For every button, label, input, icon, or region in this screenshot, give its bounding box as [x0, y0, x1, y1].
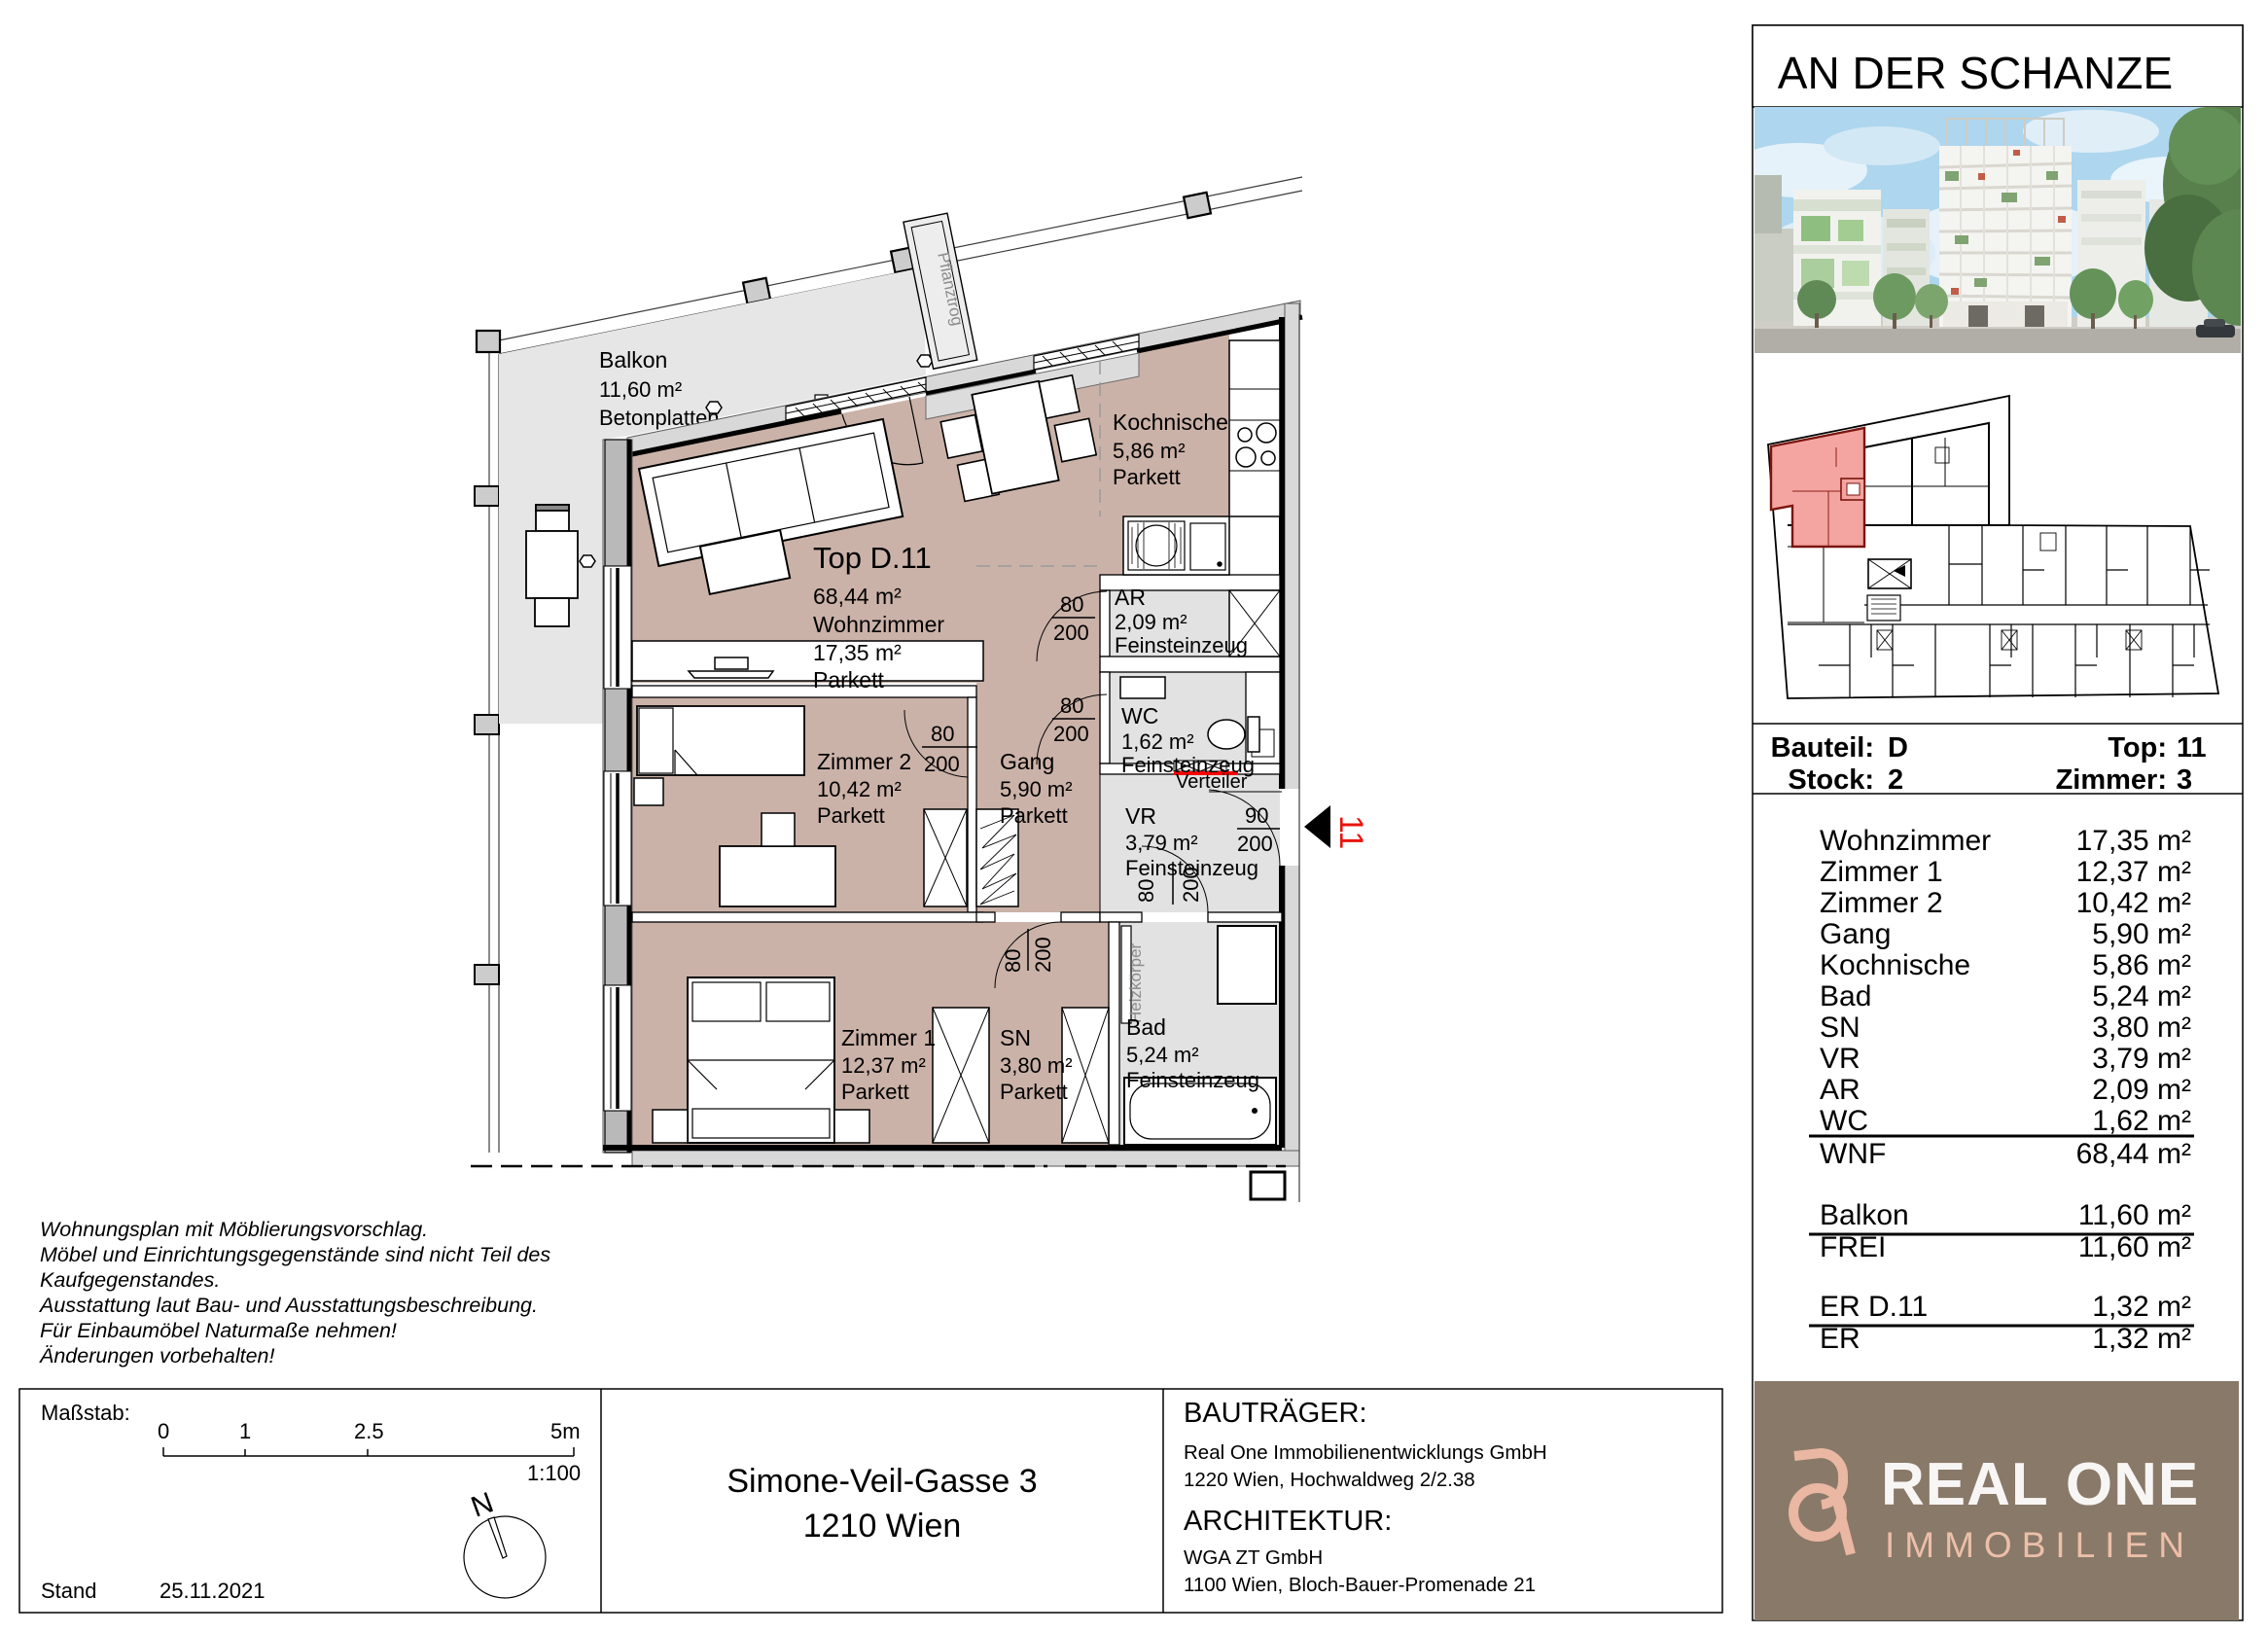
svg-text:2: 2: [1888, 764, 1903, 796]
svg-text:1,32 m²: 1,32 m²: [2092, 1291, 2191, 1323]
svg-text:Parkett: Parkett: [1000, 1080, 1068, 1104]
svg-text:Feinsteinzeug: Feinsteinzeug: [1115, 633, 1248, 657]
svg-text:Stock:: Stock:: [1788, 764, 1874, 796]
svg-text:Parkett: Parkett: [817, 803, 885, 828]
svg-text:Kaufgegenstandes.: Kaufgegenstandes.: [40, 1268, 220, 1292]
svg-text:11,60 m²: 11,60 m²: [2078, 1231, 2191, 1263]
svg-text:1220 Wien, Hochwaldweg 2/2.38: 1220 Wien, Hochwaldweg 2/2.38: [1184, 1469, 1475, 1491]
svg-text:5,24 m²: 5,24 m²: [1126, 1043, 1199, 1067]
svg-text:80: 80: [931, 722, 954, 746]
svg-text:80: 80: [1134, 879, 1158, 903]
svg-text:SN: SN: [1000, 1025, 1031, 1050]
svg-text:Wohnzimmer: Wohnzimmer: [1820, 825, 1991, 857]
svg-text:5,24 m²: 5,24 m²: [2092, 980, 2191, 1012]
svg-text:Feinsteinzeug: Feinsteinzeug: [1125, 856, 1258, 880]
svg-text:1: 1: [239, 1419, 251, 1443]
svg-text:1,32 m²: 1,32 m²: [2092, 1323, 2191, 1355]
svg-text:VR: VR: [1820, 1043, 1860, 1075]
svg-text:WNF: WNF: [1820, 1138, 1886, 1170]
svg-text:11: 11: [1332, 815, 1369, 849]
svg-text:Stand: Stand: [41, 1579, 97, 1603]
svg-text:200: 200: [1053, 722, 1089, 746]
svg-text:5m: 5m: [550, 1419, 581, 1443]
svg-text:AR: AR: [1115, 585, 1146, 610]
svg-text:2,09 m²: 2,09 m²: [1115, 610, 1187, 634]
svg-text:Parkett: Parkett: [841, 1080, 909, 1104]
svg-text:Feinsteinzeug: Feinsteinzeug: [1121, 753, 1255, 777]
svg-text:80: 80: [1060, 693, 1083, 718]
svg-text:Wohnzimmer: Wohnzimmer: [813, 612, 944, 637]
svg-text:AR: AR: [1820, 1074, 1860, 1106]
svg-text:11: 11: [2177, 732, 2207, 764]
svg-text:BAUTRÄGER:: BAUTRÄGER:: [1184, 1398, 1367, 1429]
svg-text:ARCHITEKTUR:: ARCHITEKTUR:: [1184, 1506, 1392, 1537]
svg-text:FREI: FREI: [1820, 1231, 1886, 1263]
svg-text:5,90 m²: 5,90 m²: [2092, 918, 2191, 950]
svg-text:Gang: Gang: [1820, 918, 1891, 950]
svg-text:Für Einbaumöbel Naturmaße nehm: Für Einbaumöbel Naturmaße nehmen!: [40, 1319, 397, 1342]
svg-text:68,44 m²: 68,44 m²: [813, 584, 902, 609]
svg-text:1:100: 1:100: [527, 1461, 581, 1485]
svg-text:5,90 m²: 5,90 m²: [1000, 777, 1073, 801]
svg-text:Gang: Gang: [1000, 749, 1054, 774]
svg-text:Heizkörper: Heizkörper: [1126, 942, 1145, 1023]
svg-text:ER: ER: [1820, 1323, 1860, 1355]
svg-text:Zimmer 2: Zimmer 2: [1820, 887, 1943, 919]
svg-text:Wohnungsplan mit Möblierungsvo: Wohnungsplan mit Möblierungsvorschlag.: [40, 1218, 428, 1241]
svg-text:3,80 m²: 3,80 m²: [1000, 1053, 1073, 1078]
svg-text:3,79 m²: 3,79 m²: [1125, 831, 1198, 855]
svg-text:10,42 m²: 10,42 m²: [2076, 887, 2191, 919]
svg-text:Top:: Top:: [2108, 732, 2167, 764]
svg-text:1,62 m²: 1,62 m²: [2092, 1105, 2191, 1137]
svg-text:Zimmer:: Zimmer:: [2056, 764, 2167, 796]
svg-text:Balkon: Balkon: [599, 347, 667, 373]
svg-text:Parkett: Parkett: [813, 667, 884, 693]
svg-text:10,42 m²: 10,42 m²: [817, 777, 902, 801]
svg-text:Bauteil:: Bauteil:: [1771, 732, 1874, 764]
svg-text:Zimmer 1: Zimmer 1: [1820, 856, 1943, 888]
svg-text:Top D.11: Top D.11: [813, 541, 932, 575]
svg-text:200: 200: [1031, 937, 1055, 973]
svg-text:Zimmer 1: Zimmer 1: [841, 1025, 936, 1050]
svg-text:D: D: [1888, 732, 1908, 764]
svg-text:11,60 m²: 11,60 m²: [2078, 1199, 2191, 1231]
svg-text:IMMOBILIEN: IMMOBILIEN: [1885, 1525, 2194, 1565]
svg-text:WC: WC: [1820, 1105, 1868, 1137]
svg-text:Bad: Bad: [1126, 1014, 1166, 1040]
svg-text:25.11.2021: 25.11.2021: [159, 1579, 265, 1603]
svg-text:1100 Wien, Bloch-Bauer-Promena: 1100 Wien, Bloch-Bauer-Promenade 21: [1184, 1574, 1536, 1596]
svg-text:Ausstattung laut Bau- und Auss: Ausstattung laut Bau- und Ausstattungsbe…: [38, 1294, 538, 1317]
svg-text:200: 200: [1053, 621, 1089, 645]
svg-text:Bad: Bad: [1820, 980, 1871, 1012]
svg-text:200: 200: [1237, 832, 1273, 856]
svg-text:12,37 m²: 12,37 m²: [841, 1053, 926, 1078]
svg-text:5,86 m²: 5,86 m²: [2092, 949, 2191, 981]
svg-text:AN DER SCHANZE: AN DER SCHANZE: [1778, 48, 2173, 98]
svg-text:2.5: 2.5: [354, 1419, 384, 1443]
svg-text:Möbel und Einrichtungsgegenstä: Möbel und Einrichtungsgegenstände sind n…: [40, 1243, 550, 1266]
svg-text:17,35 m²: 17,35 m²: [2076, 825, 2191, 857]
svg-text:3,80 m²: 3,80 m²: [2092, 1012, 2191, 1044]
svg-text:80: 80: [1060, 592, 1083, 617]
svg-text:3,79 m²: 3,79 m²: [2092, 1043, 2191, 1075]
svg-text:Feinsteinzeug: Feinsteinzeug: [1126, 1068, 1259, 1092]
svg-text:2,09 m²: 2,09 m²: [2092, 1074, 2191, 1106]
svg-text:68,44 m²: 68,44 m²: [2076, 1138, 2191, 1170]
svg-text:Real One Immobilienentwicklung: Real One Immobilienentwicklungs GmbH: [1184, 1441, 1547, 1464]
svg-text:WC: WC: [1121, 703, 1158, 728]
svg-text:VR: VR: [1125, 803, 1156, 829]
svg-text:3: 3: [2177, 764, 2192, 796]
svg-text:Kochnische: Kochnische: [1113, 409, 1228, 435]
svg-text:REAL ONE: REAL ONE: [1881, 1451, 2199, 1518]
svg-text:0: 0: [158, 1419, 169, 1443]
svg-text:80: 80: [1001, 949, 1025, 973]
svg-text:WGA ZT GmbH: WGA ZT GmbH: [1184, 1546, 1323, 1569]
svg-text:1210 Wien: 1210 Wien: [803, 1508, 962, 1545]
svg-text:5,86 m²: 5,86 m²: [1113, 439, 1186, 463]
svg-text:Änderungen vorbehalten!: Änderungen vorbehalten!: [39, 1344, 274, 1368]
svg-text:ER D.11: ER D.11: [1820, 1291, 1928, 1323]
svg-text:Parkett: Parkett: [1000, 803, 1068, 828]
svg-text:1,62 m²: 1,62 m²: [1121, 729, 1194, 754]
svg-text:Kochnische: Kochnische: [1820, 949, 1970, 981]
svg-text:SN: SN: [1820, 1012, 1860, 1044]
svg-text:Maßstab:: Maßstab:: [41, 1401, 130, 1425]
svg-text:11,60 m²: 11,60 m²: [599, 377, 682, 402]
svg-text:Simone-Veil-Gasse 3: Simone-Veil-Gasse 3: [726, 1463, 1037, 1500]
svg-text:90: 90: [1245, 803, 1268, 828]
svg-text:12,37 m²: 12,37 m²: [2076, 856, 2191, 888]
svg-text:Balkon: Balkon: [1820, 1199, 1909, 1231]
svg-text:Parkett: Parkett: [1113, 465, 1181, 489]
svg-text:200: 200: [924, 752, 960, 776]
svg-text:17,35 m²: 17,35 m²: [813, 640, 902, 665]
svg-text:Zimmer 2: Zimmer 2: [817, 749, 911, 774]
